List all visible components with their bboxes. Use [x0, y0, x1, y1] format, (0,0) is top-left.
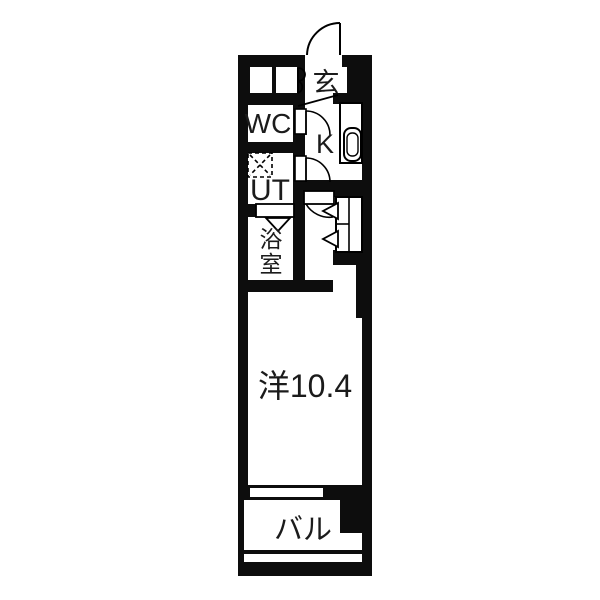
balcony-rail-top-line — [244, 550, 362, 554]
pillar-balcony-right — [340, 498, 372, 533]
entrance-door-arc — [307, 23, 340, 55]
bathroom-folding-door-triangle — [266, 218, 290, 231]
ut-door-panel — [295, 156, 306, 181]
wc-door-arc — [306, 111, 330, 135]
wall-bottom — [238, 562, 372, 576]
kitchen-sink-basin-icon — [347, 133, 358, 156]
wall-wc-ut-divider — [248, 142, 293, 153]
shaft-box-right — [276, 67, 297, 93]
pillar-room-right — [356, 265, 372, 318]
wall-left — [238, 55, 248, 500]
wall-room-top — [238, 280, 333, 292]
wall-top-left — [238, 55, 305, 67]
wall-right-of-entrance — [347, 67, 362, 93]
room-door-panel — [304, 191, 334, 204]
wc-door-panel — [295, 109, 306, 134]
floor-plan: 玄 WC K UT 浴室 洋10.4 バル — [0, 0, 600, 600]
floor-plan-drawing — [0, 0, 600, 600]
balcony-window-opening — [250, 488, 323, 497]
shaft-box-left — [250, 67, 272, 93]
ut-door-arc — [306, 158, 330, 182]
balcony-rail-opening — [244, 554, 362, 562]
bathroom-door-panel — [256, 204, 294, 217]
closet-folding-door-triangle-bottom — [323, 231, 338, 247]
